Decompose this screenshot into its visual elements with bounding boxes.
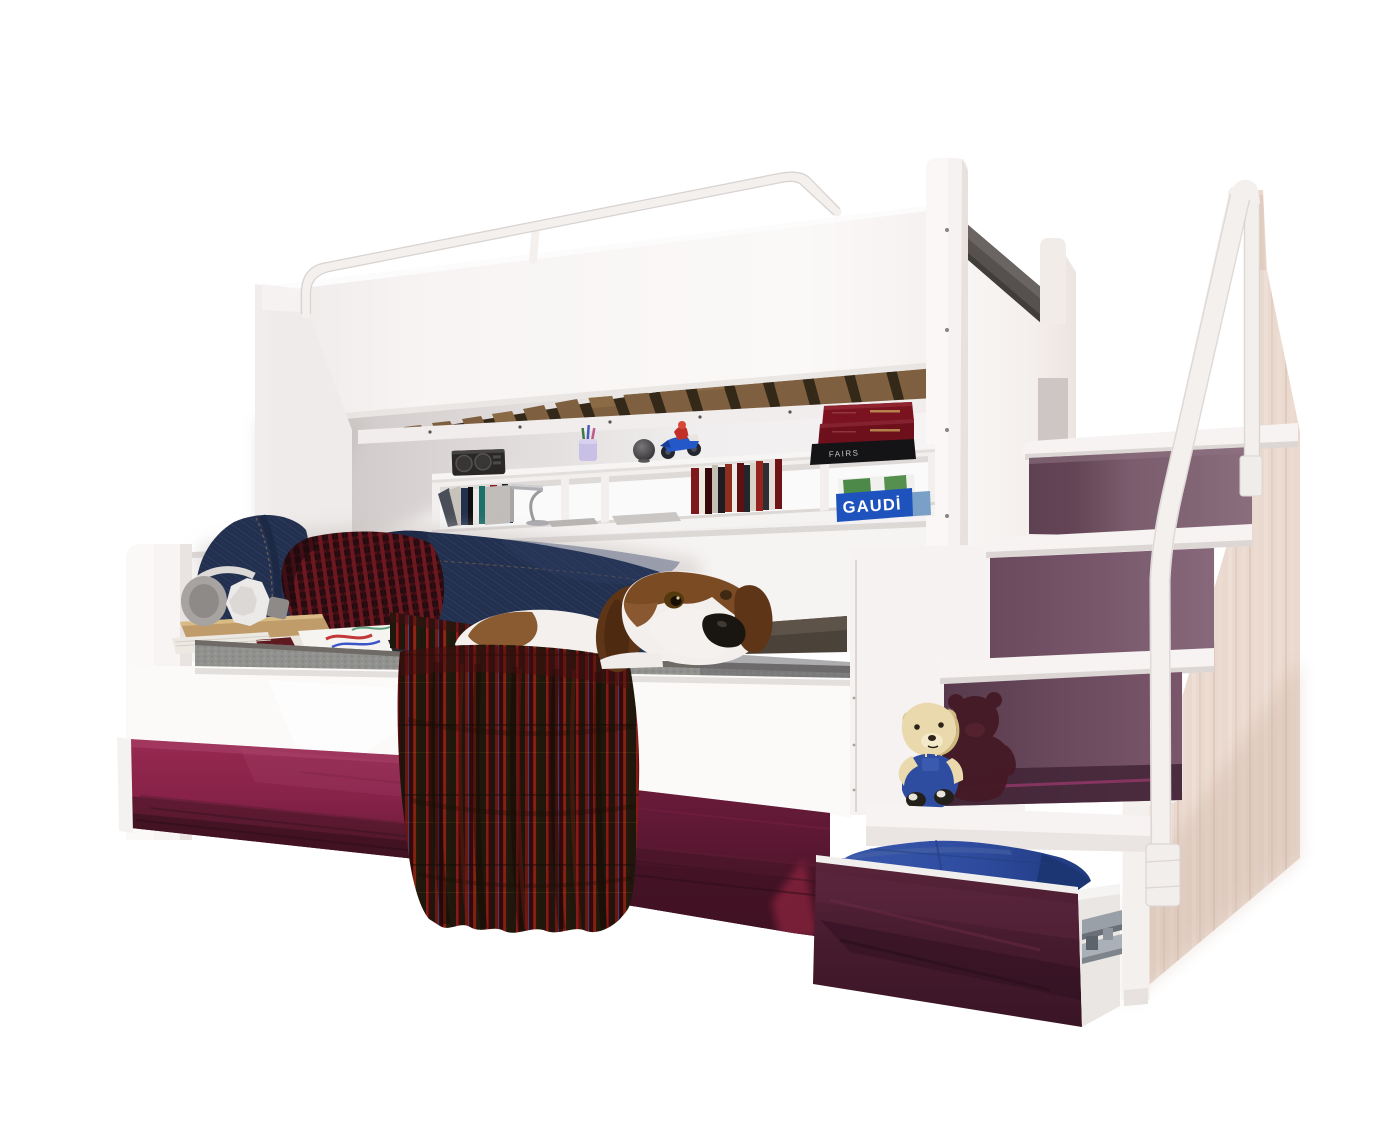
svg-text:GAUDİ: GAUDİ	[842, 495, 902, 517]
svg-text:FAIRS: FAIRS	[829, 448, 860, 459]
